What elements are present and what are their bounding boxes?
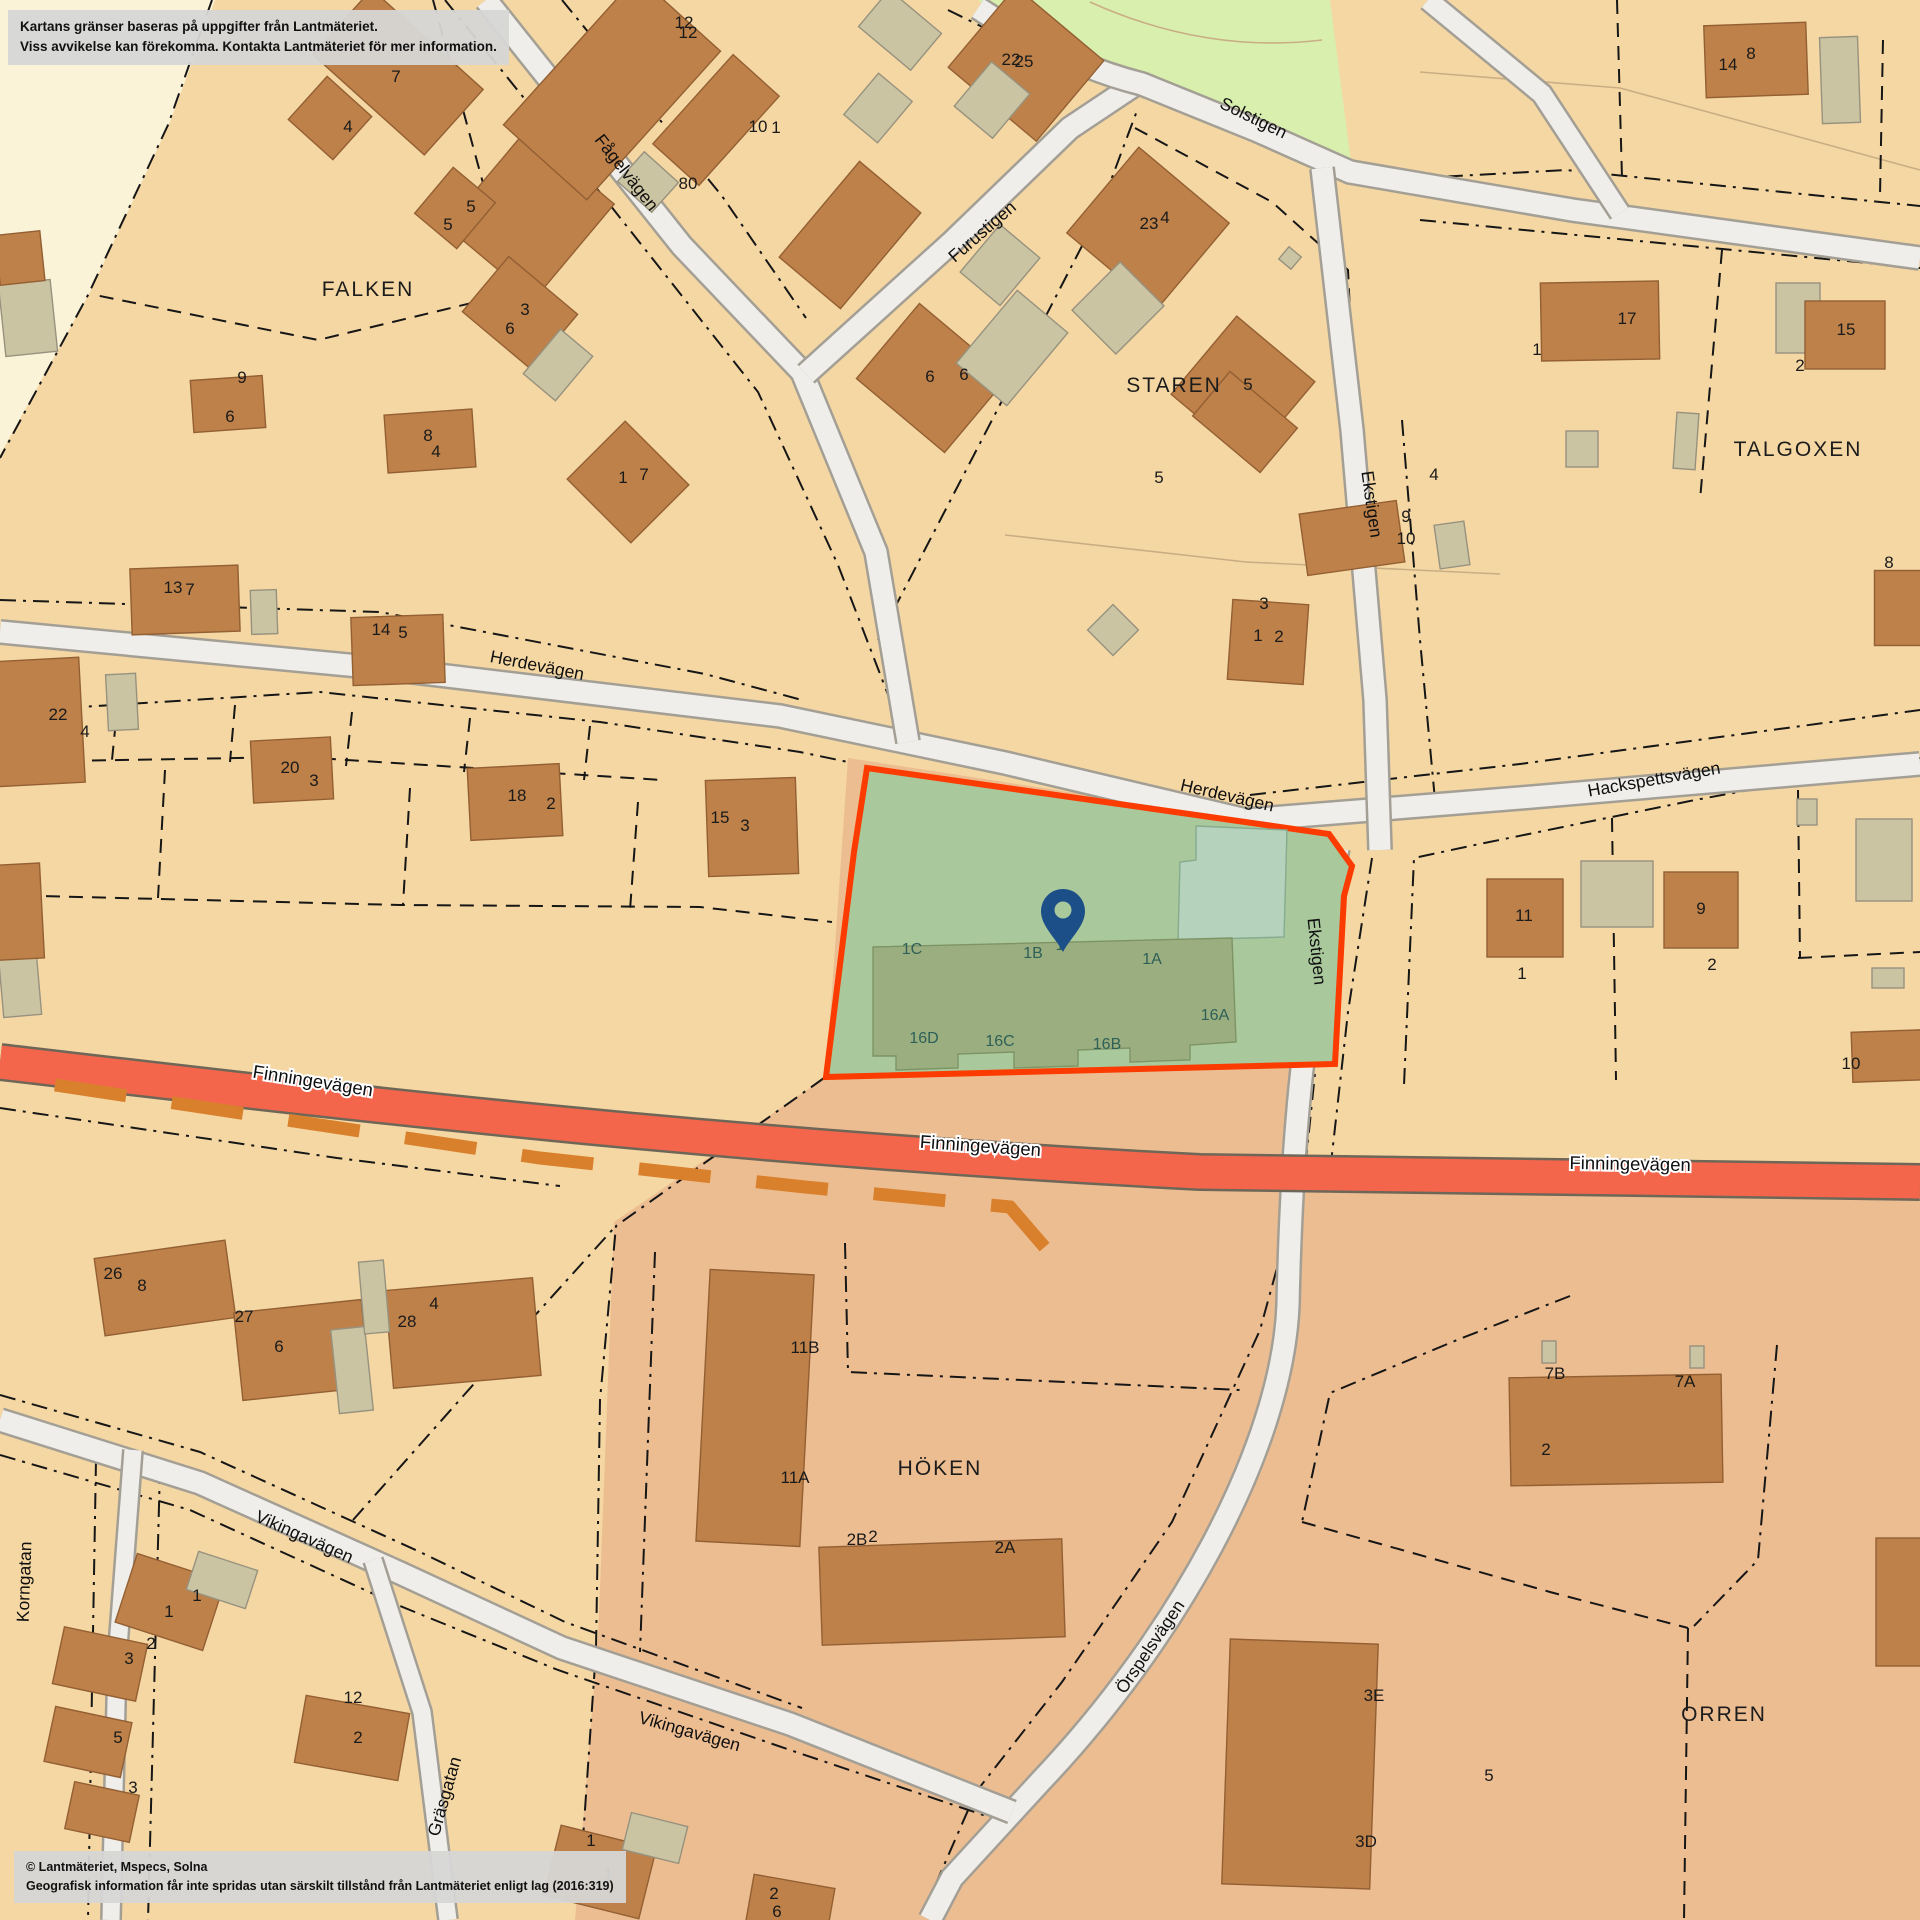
house-number-label: 7A — [1675, 1372, 1696, 1391]
building-house — [696, 1269, 814, 1546]
subject-unit-label: 16B — [1093, 1036, 1121, 1053]
house-number-label: 2A — [995, 1538, 1016, 1557]
house-number-label: 3 — [128, 1778, 137, 1797]
house-number-label: 3E — [1364, 1686, 1385, 1705]
house-number-label: 5 — [443, 215, 452, 234]
house-number-label: 1 — [771, 118, 780, 137]
house-number-label: 25 — [1015, 52, 1034, 71]
house-number-label: 20 — [281, 758, 300, 777]
district-label: STAREN — [1126, 374, 1222, 397]
copyright-line-2: Geografisk information får inte spridas … — [26, 1877, 614, 1896]
house-number-label: 1 — [1517, 964, 1526, 983]
house-number-label: 5 — [113, 1728, 122, 1747]
house-number-label: 8 — [137, 1276, 146, 1295]
building-house — [1876, 1538, 1920, 1666]
house-number-label: 2 — [1707, 955, 1716, 974]
house-number-label: 13 — [164, 578, 183, 597]
map-disclaimer: Kartans gränser baseras på uppgifter frå… — [8, 10, 509, 65]
subject-unit-label: 1C — [902, 941, 922, 958]
house-number-label: 3 — [1259, 594, 1268, 613]
building-house — [385, 1278, 541, 1389]
house-number-label: 4 — [1160, 208, 1169, 227]
house-number-label: 14 — [372, 620, 391, 639]
building-shed — [0, 952, 42, 1017]
building-shed — [1797, 799, 1817, 825]
district-label: TALGOXEN — [1734, 438, 1863, 461]
building-house — [819, 1539, 1065, 1645]
map-viewport[interactable]: FågelvägenFurustigenSolstigenEkstigenEks… — [0, 0, 1920, 1920]
house-number-label: 11 — [1515, 906, 1533, 925]
house-number-label: 2B — [847, 1530, 868, 1549]
building-house — [0, 657, 85, 786]
building-shed — [1856, 819, 1912, 901]
pin-hole — [1055, 902, 1072, 919]
building-shed — [1542, 1341, 1556, 1363]
house-number-label: 7B — [1545, 1364, 1566, 1383]
house-number-label: 10 — [749, 117, 768, 136]
building-shed — [1566, 431, 1598, 467]
building-house — [1875, 571, 1920, 646]
house-number-label: 1 — [1532, 340, 1541, 359]
building-shed — [106, 673, 139, 730]
house-number-label: 18 — [508, 786, 527, 805]
district-label: FALKEN — [322, 278, 415, 301]
house-number-label: 17 — [1618, 309, 1637, 328]
building-shed — [0, 279, 58, 356]
building-house — [1540, 281, 1659, 361]
building-house — [0, 863, 44, 961]
building-shed — [1673, 412, 1699, 469]
building-house — [0, 231, 45, 285]
disclaimer-line-1: Kartans gränser baseras på uppgifter frå… — [20, 17, 497, 37]
subject-unit-label: 1B — [1023, 945, 1043, 962]
house-number-label: 80 — [679, 174, 698, 193]
map-copyright: © Lantmäteriet, Mspecs, Solna Geografisk… — [14, 1851, 626, 1903]
house-number-label: 2 — [769, 1884, 778, 1903]
house-number-label: 23 — [1140, 214, 1159, 233]
house-number-label: 6 — [225, 407, 234, 426]
house-number-label: 3 — [309, 771, 318, 790]
building-house — [1851, 1030, 1920, 1082]
building-shed — [250, 590, 278, 635]
house-number-label: 6 — [274, 1337, 283, 1356]
house-number-label: 7 — [391, 67, 400, 86]
house-number-label: 2 — [146, 1634, 155, 1653]
copyright-line-1: © Lantmäteriet, Mspecs, Solna — [26, 1858, 614, 1877]
house-number-label: 1 — [192, 1586, 201, 1605]
house-number-label: 3D — [1355, 1832, 1377, 1851]
house-number-label: 28 — [398, 1312, 417, 1331]
house-number-label: 5 — [466, 197, 475, 216]
building-shed — [1820, 36, 1861, 123]
house-number-label: 8 — [1746, 44, 1755, 63]
house-number-label: 26 — [104, 1264, 123, 1283]
house-number-label: 9 — [237, 368, 246, 387]
house-number-label: 12 — [679, 23, 698, 42]
building-shed — [1690, 1346, 1704, 1368]
building-shed — [1434, 521, 1470, 569]
subject-unit-label: 16D — [909, 1030, 938, 1047]
house-number-label: 3 — [740, 816, 749, 835]
house-number-label: 2 — [868, 1527, 877, 1546]
street-label: Korngatan — [13, 1541, 36, 1622]
district-label: ORREN — [1681, 1703, 1767, 1726]
house-number-label: 14 — [1719, 55, 1738, 74]
subject-unit-label: 16A — [1201, 1007, 1230, 1024]
house-number-label: 4 — [80, 722, 89, 741]
house-number-label: 1 — [1253, 626, 1262, 645]
house-number-label: 9 — [1696, 899, 1705, 918]
house-number-label: 8 — [1884, 553, 1893, 572]
house-number-label: 10 — [1397, 529, 1416, 548]
house-number-label: 5 — [1243, 375, 1252, 394]
house-number-label: 10 — [1842, 1054, 1861, 1073]
house-number-label: 22 — [49, 705, 68, 724]
building-house — [1222, 1639, 1378, 1889]
house-number-label: 1 — [618, 468, 627, 487]
street-label: Finningevägen — [1569, 1152, 1691, 1175]
house-number-label: 1 — [586, 1831, 595, 1850]
house-number-label: 6 — [959, 365, 968, 384]
building-house — [130, 565, 240, 635]
house-number-label: 27 — [235, 1307, 254, 1326]
house-number-label: 6 — [772, 1902, 781, 1920]
house-number-label: 12 — [344, 1688, 363, 1707]
house-number-label: 5 — [1484, 1766, 1493, 1785]
house-number-label: 4 — [431, 442, 440, 461]
building-shed — [1581, 861, 1653, 927]
house-number-label: 11B — [791, 1338, 820, 1357]
house-number-label: 4 — [343, 117, 352, 136]
subject-unit-label: 1A — [1142, 951, 1162, 968]
house-number-label: 2 — [1541, 1440, 1550, 1459]
house-number-label: 2 — [546, 794, 555, 813]
house-number-label: 15 — [711, 808, 730, 827]
house-number-label: 15 — [1837, 320, 1856, 339]
house-number-label: 5 — [398, 623, 407, 642]
house-number-label: 9 — [1401, 507, 1410, 526]
subject-unit-label: 16C — [985, 1033, 1014, 1050]
house-number-label: 2 — [1795, 356, 1804, 375]
house-number-label: 1 — [164, 1602, 173, 1621]
house-number-label: 6 — [505, 319, 514, 338]
building-shed — [358, 1260, 389, 1334]
house-number-label: 3 — [124, 1649, 133, 1668]
building-shed — [1872, 968, 1904, 988]
building-house — [705, 777, 798, 876]
building-house — [1299, 500, 1405, 575]
house-number-label: 3 — [520, 300, 529, 319]
house-number-label: 7 — [639, 465, 648, 484]
disclaimer-line-2: Viss avvikelse kan förekomma. Kontakta L… — [20, 37, 497, 57]
house-number-label: 5 — [1154, 468, 1163, 487]
house-number-label: 2 — [1274, 627, 1283, 646]
house-number-label: 4 — [429, 1294, 438, 1313]
house-number-label: 6 — [925, 367, 934, 386]
house-number-label: 7 — [185, 580, 194, 599]
house-number-label: 4 — [1429, 465, 1438, 484]
district-label: HÖKEN — [898, 1457, 983, 1480]
map-svg[interactable]: FågelvägenFurustigenSolstigenEkstigenEks… — [0, 0, 1920, 1920]
house-number-label: 11A — [781, 1468, 811, 1487]
subject-building — [873, 938, 1236, 1070]
house-number-label: 2 — [353, 1728, 362, 1747]
